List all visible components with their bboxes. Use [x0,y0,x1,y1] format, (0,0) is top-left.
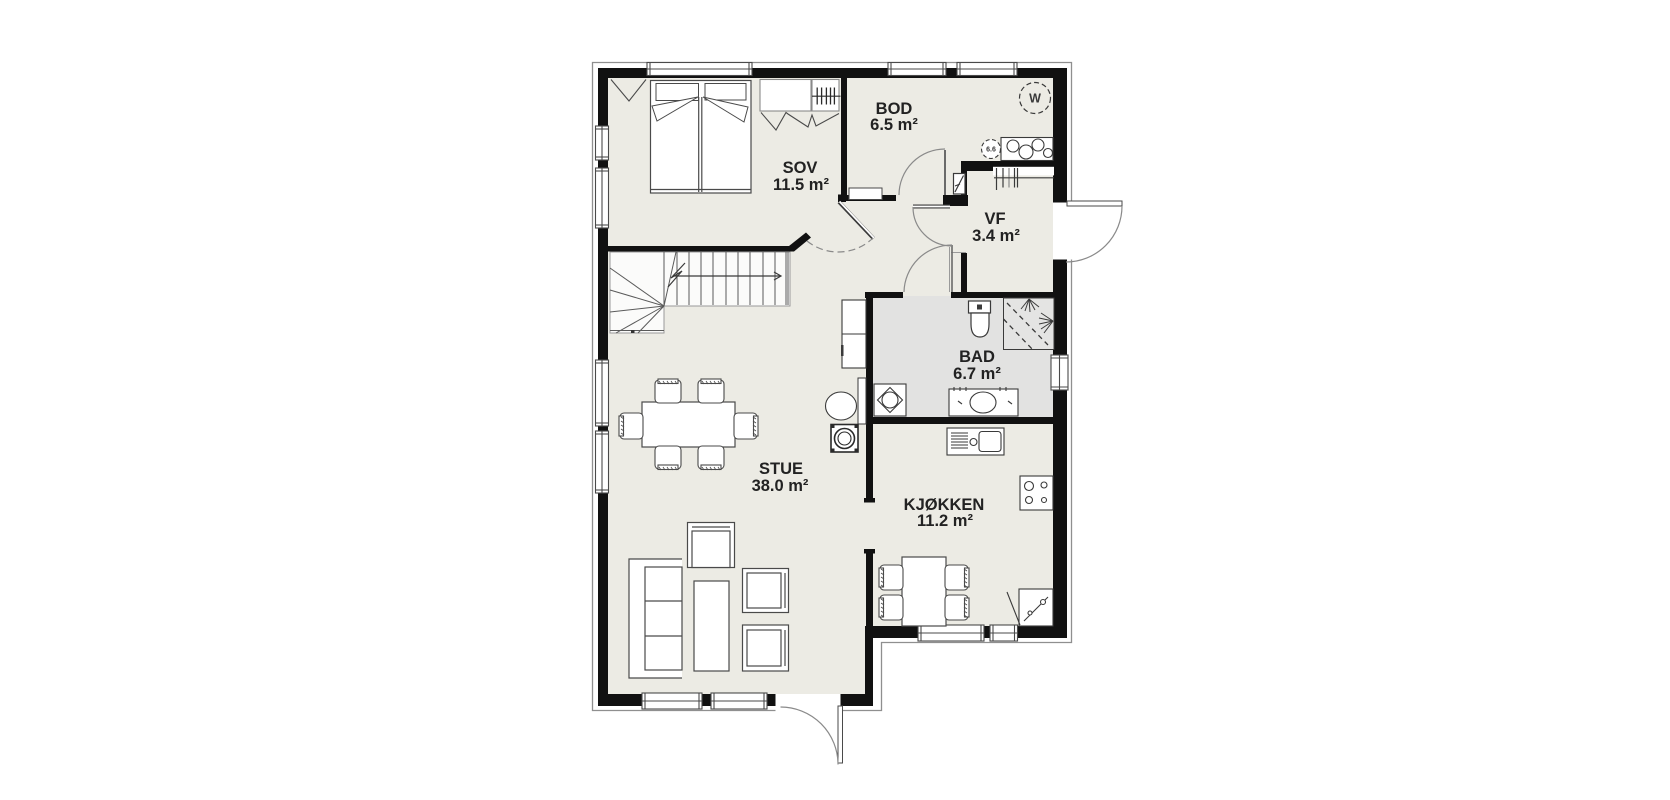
svg-text:BAD: BAD [959,348,995,366]
svg-text:VF: VF [984,210,1005,228]
svg-text:STUE: STUE [759,460,803,478]
svg-text:6.7 m²: 6.7 m² [953,365,1001,383]
svg-text:11.5 m²: 11.5 m² [773,176,829,194]
svg-text:SOV: SOV [783,159,818,177]
svg-text:38.0 m²: 38.0 m² [752,477,809,495]
svg-text:6.6: 6.6 [986,147,996,154]
svg-text:W: W [1029,92,1041,106]
svg-text:3.4 m²: 3.4 m² [972,227,1020,245]
svg-text:6.5 m²: 6.5 m² [870,116,918,134]
svg-text:11.2 m²: 11.2 m² [917,512,973,530]
